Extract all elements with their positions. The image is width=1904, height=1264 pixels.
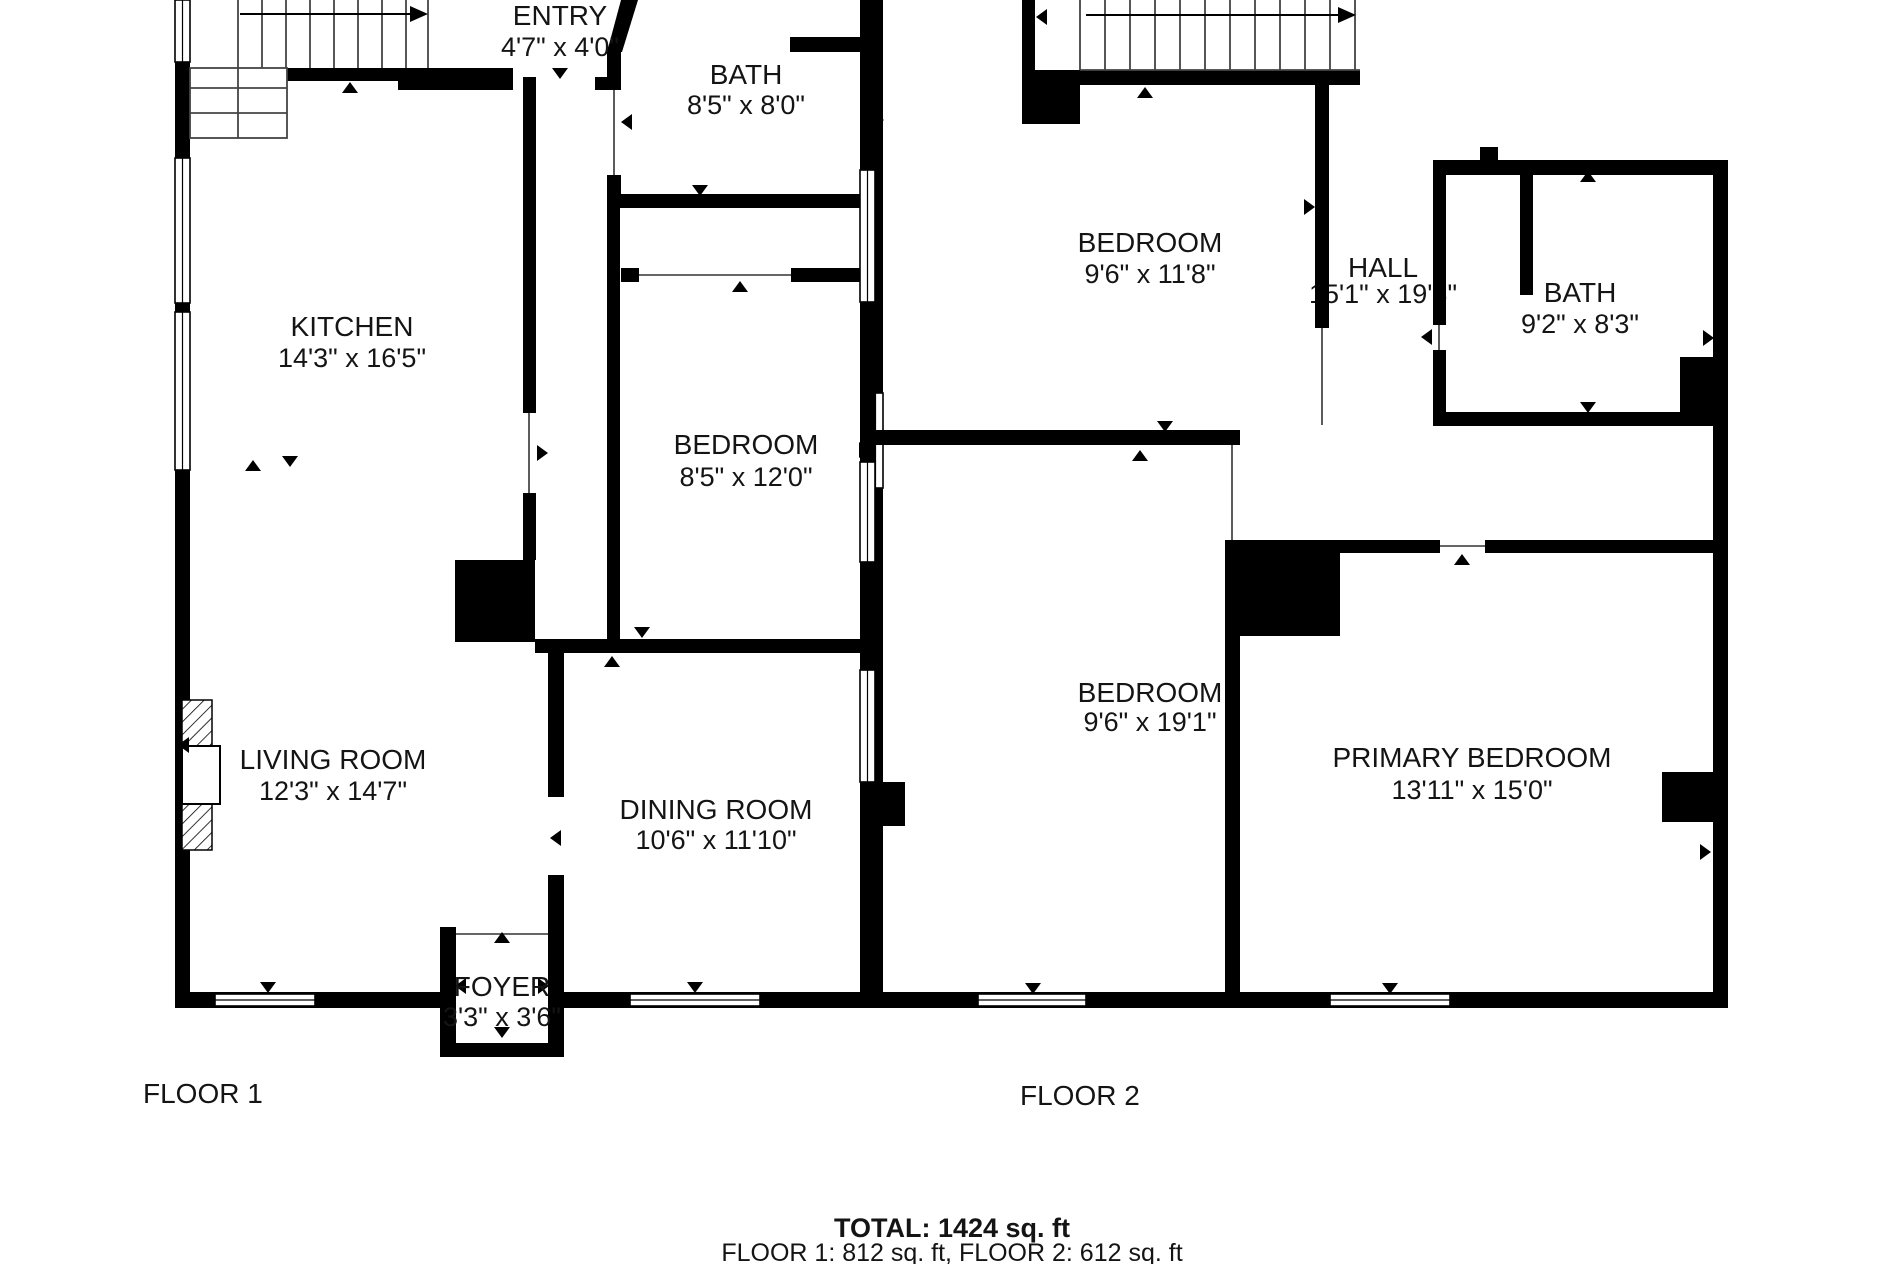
room-dims: 9'2" x 8'3": [1521, 309, 1639, 339]
room-dims: 9'6" x 19'1": [1083, 707, 1216, 737]
area-summary: TOTAL: 1424 sq. ft FLOOR 1: 812 sq. ft, …: [721, 1213, 1182, 1264]
room-label: BEDROOM: [674, 429, 819, 460]
floor1-walls: [175, 0, 883, 1057]
room-label: BATH: [710, 59, 783, 90]
room-label: LIVING ROOM: [240, 744, 427, 775]
window: [175, 158, 190, 303]
room-label: BEDROOM: [1078, 227, 1223, 258]
window: [1330, 994, 1450, 1006]
floor-areas: FLOOR 1: 812 sq. ft, FLOOR 2: 612 sq. ft: [721, 1239, 1182, 1264]
room-dims: 4'7" x 4'0": [501, 32, 619, 62]
room-label: ENTRY: [513, 0, 608, 31]
room-label: BATH: [1544, 277, 1617, 308]
floor2-opening-markers: [873, 9, 1714, 994]
floor2-walls: [830, 0, 1728, 1008]
fireplace-icon: [182, 700, 220, 850]
room-dims: 10'6" x 11'10": [635, 825, 796, 855]
room-dims: 8'5" x 12'0": [679, 462, 812, 492]
room-label: DINING ROOM: [620, 794, 813, 825]
room-dims: 12'3" x 14'7": [259, 776, 407, 806]
window: [215, 994, 315, 1006]
floor1-plan: ENTRY 4'7" x 4'0" BATH 8'5" x 8'0" KITCH…: [175, 0, 883, 1057]
window: [860, 170, 875, 302]
window: [978, 994, 1086, 1006]
room-dims: 9'6" x 11'8": [1084, 259, 1215, 289]
room-label: BEDROOM: [1078, 677, 1223, 708]
window: [175, 0, 190, 62]
window: [175, 312, 190, 470]
stair-direction-arrow-icon: [1086, 7, 1356, 23]
floor2-opening-lines: [1232, 325, 1485, 546]
room-dims: 13'11" x 15'0": [1391, 775, 1552, 805]
room-dims: 3'3" x 3'6": [443, 1002, 561, 1032]
room-dims: 14'3" x 16'5": [278, 343, 426, 373]
window: [630, 994, 760, 1006]
window: [860, 462, 875, 562]
floor2-stairs: [1080, 0, 1360, 70]
window: [860, 670, 875, 782]
floorplan-drawing: ENTRY 4'7" x 4'0" BATH 8'5" x 8'0" KITCH…: [0, 0, 1904, 1264]
room-label: KITCHEN: [291, 311, 414, 342]
floor1-caption: FLOOR 1: [143, 1078, 263, 1109]
floorplan-canvas: ENTRY 4'7" x 4'0" BATH 8'5" x 8'0" KITCH…: [0, 0, 1904, 1264]
room-dims: 8'5" x 8'0": [687, 90, 805, 120]
floor2-plan: HALL 15'1" x 19'8": [830, 0, 1728, 1008]
room-label: FOYER: [454, 971, 550, 1002]
floor2-caption: FLOOR 2: [1020, 1080, 1140, 1111]
room-label: PRIMARY BEDROOM: [1332, 742, 1611, 773]
floor2-room-labels: BEDROOM 9'6" x 11'8" BATH 9'2" x 8'3" BE…: [1078, 227, 1639, 805]
